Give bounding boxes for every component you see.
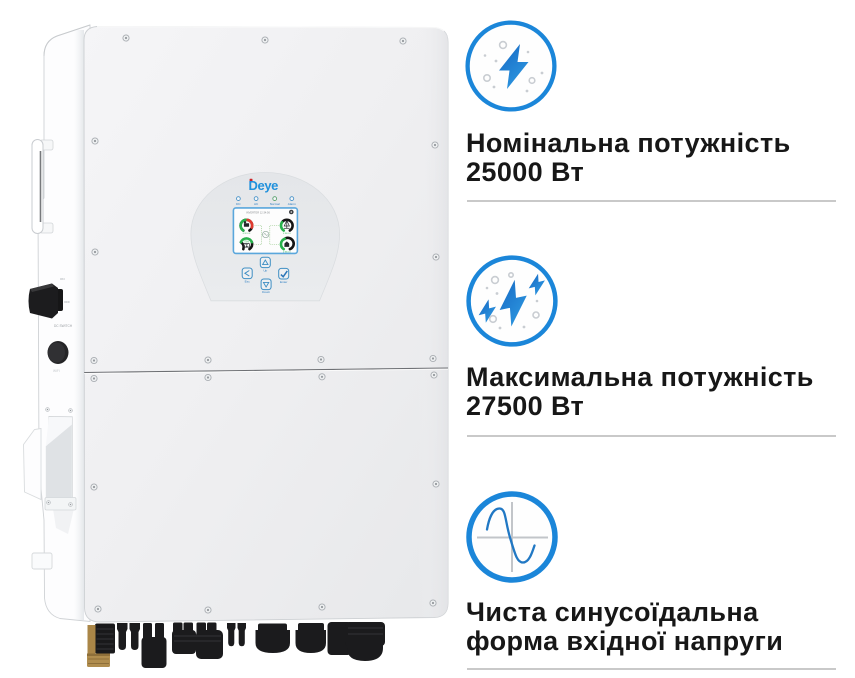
svg-text:Alarm: Alarm: [288, 202, 297, 206]
svg-text:0 W 0 0: 0 W 0 0: [243, 233, 251, 235]
svg-text:AC: AC: [254, 202, 259, 206]
svg-text:Up: Up: [263, 269, 267, 273]
svg-text:WIFI: WIFI: [53, 369, 60, 373]
svg-text:ON: ON: [60, 277, 65, 281]
svg-text:Enter: Enter: [280, 280, 287, 284]
svg-text:DC: DC: [236, 202, 241, 206]
svg-text:0 W 0 0: 0 W 0 0: [283, 233, 291, 235]
svg-text:Normal: Normal: [270, 202, 280, 206]
svg-text:0 W 0 0: 0 W 0 0: [283, 252, 291, 254]
svg-text:Deye: Deye: [249, 178, 279, 193]
svg-text:DC SWITCH: DC SWITCH: [54, 324, 73, 328]
svg-text:Esc: Esc: [245, 280, 251, 284]
svg-text:Down: Down: [262, 290, 270, 294]
svg-text:OFF: OFF: [64, 300, 70, 304]
svg-text:INVERTER 12:34:56: INVERTER 12:34:56: [246, 211, 270, 215]
